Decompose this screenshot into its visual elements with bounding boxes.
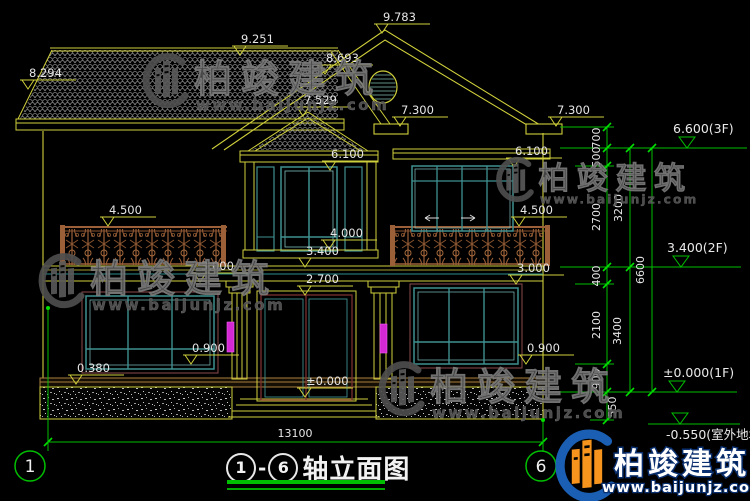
level-marker-text: 2.700 — [306, 272, 339, 286]
watermark: 柏竣建筑www.baijunjz.com — [499, 160, 698, 207]
level-marker-text: ±0.000 — [306, 374, 349, 388]
floor-level-marker: ±0.000(1F) — [645, 365, 737, 392]
chain-dim-text: 700 — [590, 128, 603, 149]
title-dash: - — [258, 456, 266, 480]
overall-dim-text: 13100 — [278, 427, 313, 440]
floor-level-marker: 3.400(2F) — [649, 240, 741, 267]
overall-dim-13100: 13100 — [44, 427, 547, 446]
title-axis-end-bubble: 6 — [268, 453, 298, 483]
axis-number: 1 — [25, 457, 36, 477]
title-underline — [227, 480, 385, 484]
axis-bubble-6: 6 — [526, 418, 556, 481]
chain-dim-text: 2700 — [590, 203, 603, 231]
level-marker-text: 3.400 — [306, 244, 339, 258]
level-marker-text: 0.900 — [527, 341, 560, 355]
logo-company-name: 柏竣建筑 — [614, 447, 750, 482]
level-marker: 9.783 — [374, 10, 430, 33]
chain-dim-text: 6600 — [634, 256, 647, 284]
level-marker-text: 3.000 — [517, 261, 550, 275]
watermark-website-url: www.baijunjz.com — [196, 96, 389, 114]
level-marker-text: 6.100 — [331, 147, 364, 161]
watermark-website-url: www.baijunjz.com — [92, 296, 285, 314]
watermark-company-name: 柏竣建筑 — [538, 161, 692, 197]
level-marker-text: 7.300 — [557, 103, 590, 117]
baijun-logo: 柏竣建筑 www.baijunjz.com — [560, 434, 750, 497]
watermark: 柏竣建筑www.baijunjz.com — [42, 257, 285, 314]
cad-elevation-drawing: 13100 9.7839.2518.6938.2947.5297.3007.30… — [0, 0, 750, 501]
axis-number: 6 — [536, 457, 547, 477]
level-marker-text: 9.251 — [241, 32, 274, 46]
floor-level-marker: 6.600(3F) — [655, 121, 747, 148]
entry-steps — [228, 399, 380, 417]
chain-dim-text: 2100 — [590, 311, 603, 339]
level-marker-text: 0.380 — [77, 361, 110, 375]
window-1f-right — [410, 284, 522, 368]
level-marker-text: 0.900 — [192, 341, 225, 355]
watermark-website-url: www.baijunjz.com — [540, 193, 698, 207]
wall-lamps — [227, 322, 387, 353]
watermark-logo-icon — [499, 160, 531, 199]
level-marker: 4.500 — [100, 203, 156, 226]
watermark-company-name: 柏竣建筑 — [430, 365, 618, 409]
level-marker-text: 9.783 — [383, 10, 416, 24]
level-marker-text: 4.500 — [109, 203, 142, 217]
floor-level-text: 3.400(2F) — [667, 240, 728, 255]
level-marker: 7.300 — [548, 103, 604, 126]
lamp-left — [227, 322, 234, 352]
floor-level-text: -0.550(室外地坪) — [666, 427, 750, 442]
chain-dim-text: 400 — [590, 266, 603, 287]
level-marker-text: 7.300 — [401, 103, 434, 117]
elevation-canvas: 13100 9.7839.2518.6938.2947.5297.3007.30… — [0, 0, 750, 501]
logo-website-url: www.baijunjz.com — [602, 480, 750, 496]
level-marker-text: 4.000 — [330, 226, 363, 240]
floor-level-marker: -0.550(室外地坪) — [648, 413, 750, 442]
floor-level-text: ±0.000(1F) — [663, 365, 734, 380]
sliding-arrows — [425, 215, 475, 221]
level-marker: 7.300 — [392, 103, 448, 126]
level-marker: 0.900 — [518, 341, 574, 364]
title-underline-thin — [227, 488, 385, 490]
lamp-right — [380, 324, 387, 353]
chain-dim-text: 3400 — [611, 317, 624, 345]
watermark-company-name: 柏竣建筑 — [194, 57, 382, 101]
watermark-company-name: 柏竣建筑 — [90, 257, 278, 301]
watermark-website-url: www.baijunjz.com — [432, 404, 625, 422]
title-axis-start-bubble: 1 — [226, 453, 256, 483]
floor-level-text: 6.600(3F) — [673, 121, 734, 136]
level-marker-text: 6.100 — [515, 144, 548, 158]
level-marker-text: 8.294 — [29, 66, 62, 80]
